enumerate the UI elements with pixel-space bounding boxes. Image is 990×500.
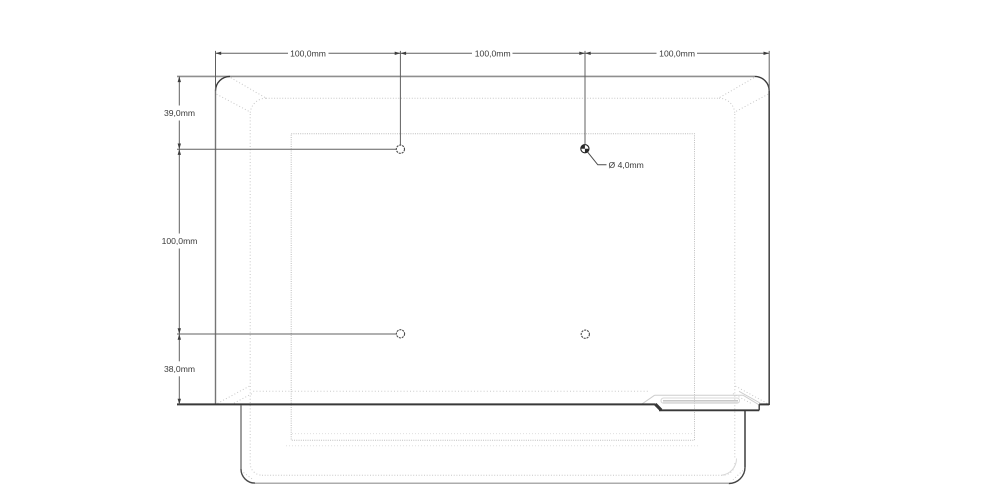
svg-text:38,0mm: 38,0mm — [164, 364, 195, 374]
svg-text:100,0mm: 100,0mm — [475, 48, 511, 58]
svg-text:100,0mm: 100,0mm — [162, 236, 198, 246]
svg-text:100,0mm: 100,0mm — [290, 48, 326, 58]
svg-text:Ø 4,0mm: Ø 4,0mm — [609, 160, 644, 170]
svg-text:39,0mm: 39,0mm — [164, 108, 195, 118]
svg-text:100,0mm: 100,0mm — [659, 48, 695, 58]
